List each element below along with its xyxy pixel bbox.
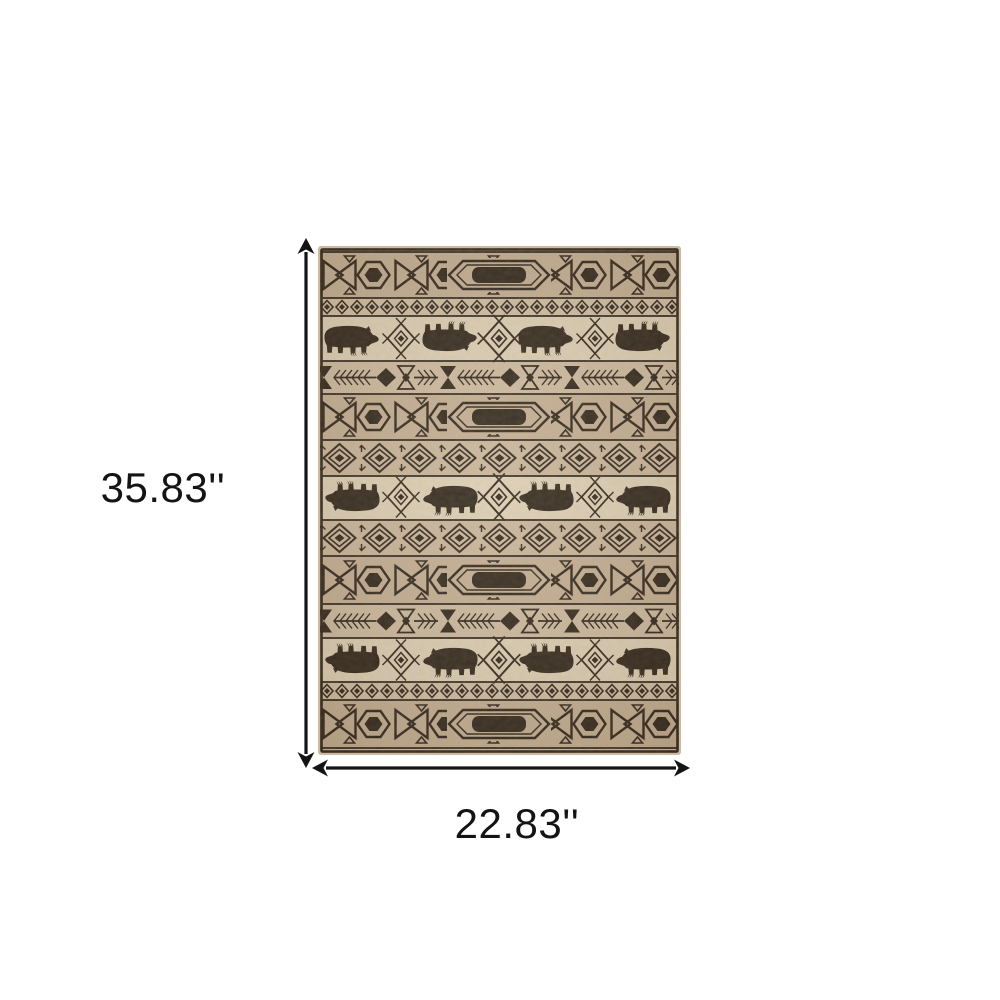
- rug-product-image: [318, 246, 681, 755]
- height-dimension-arrow: [295, 238, 317, 768]
- height-dimension-label: 35.83'': [38, 464, 288, 512]
- width-dimension-label: 22.83'': [392, 800, 642, 848]
- rug-pattern-graphic: [318, 246, 681, 755]
- product-dimension-diagram: 35.83'' 22.83'': [0, 0, 1000, 1000]
- width-dimension-arrow: [312, 757, 690, 779]
